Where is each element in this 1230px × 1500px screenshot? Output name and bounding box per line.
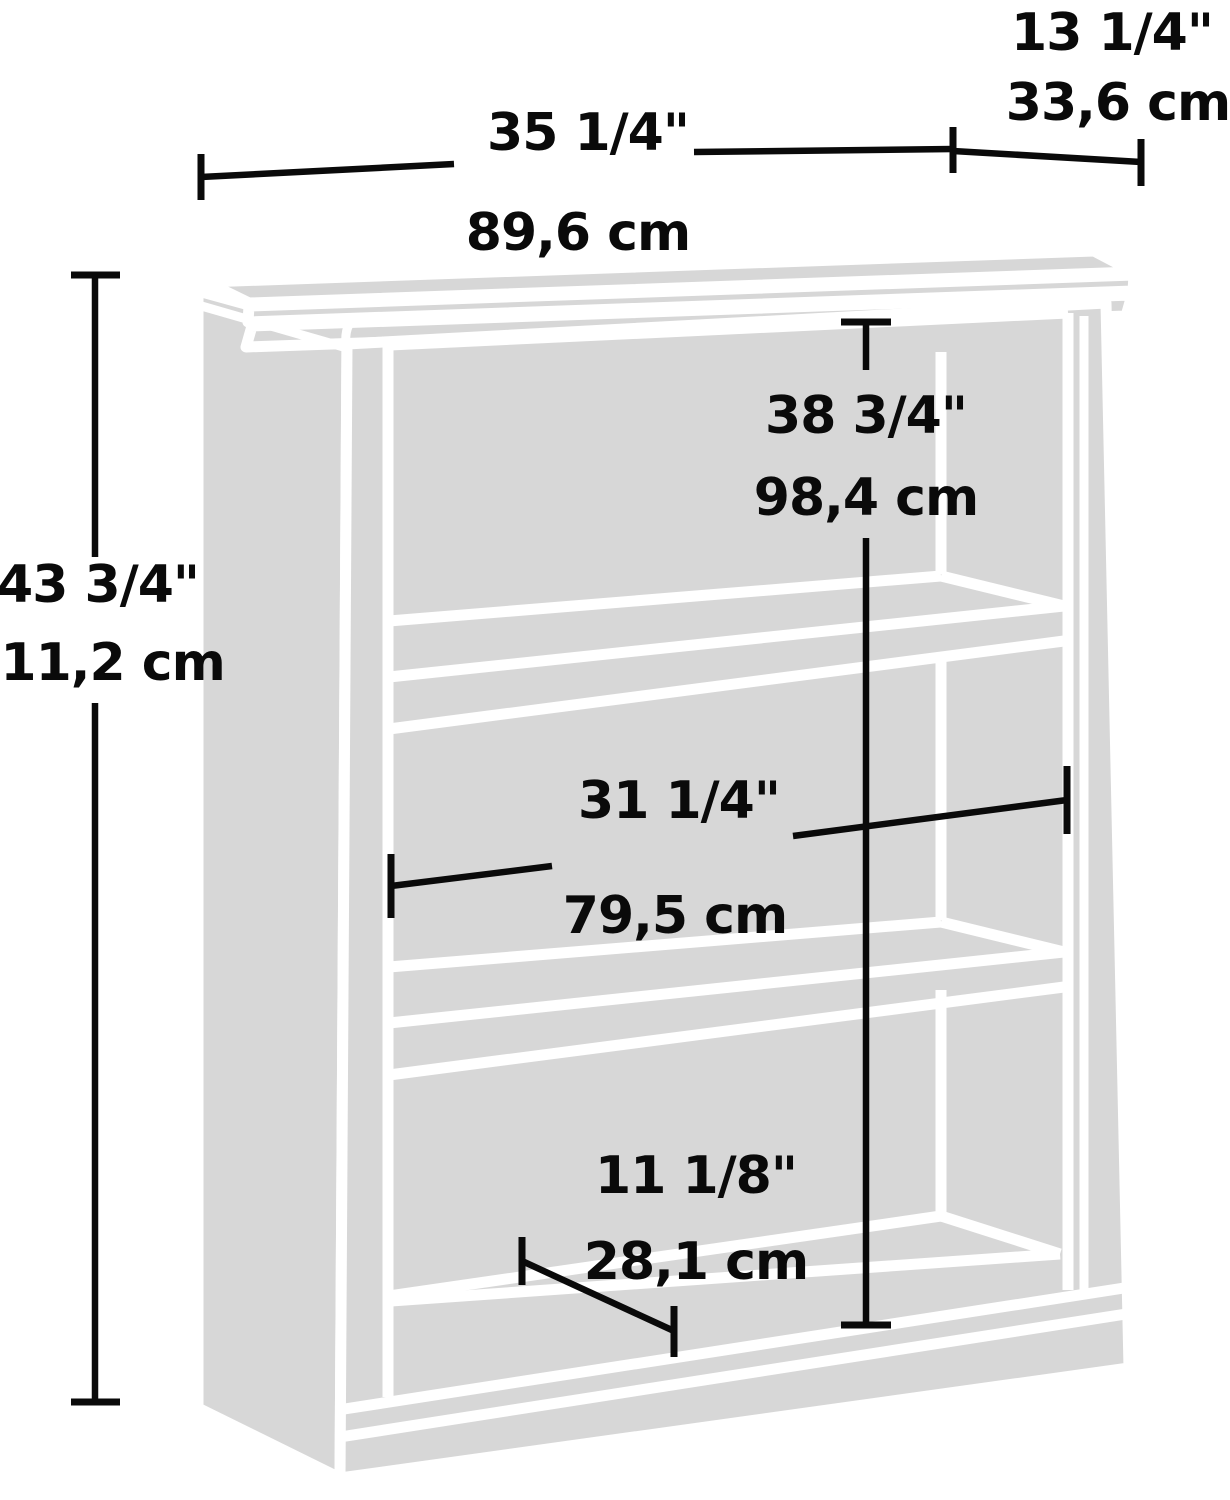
shelf-depth-metric-label: 28,1 cm bbox=[584, 1232, 808, 1292]
overall-width-metric-label: 89,6 cm bbox=[466, 203, 690, 263]
overall-height-inches-label: 43 3/4" bbox=[0, 555, 199, 615]
bookcase-drawing bbox=[198, 251, 1134, 1478]
diagram-canvas: 35 1/4" 89,6 cm 13 1/4" 33,6 cm 43 3/4" … bbox=[0, 0, 1230, 1500]
side-panel bbox=[198, 291, 347, 1478]
interior-height-metric-label: 98,4 cm bbox=[754, 468, 978, 528]
overall-depth-dimension bbox=[953, 139, 1141, 186]
overall-depth-metric-label: 33,6 cm bbox=[1006, 73, 1230, 133]
overall-height-dimension bbox=[71, 275, 120, 1402]
overall-width-inches-label: 35 1/4" bbox=[487, 103, 689, 163]
interior-height-inches-label: 38 3/4" bbox=[765, 386, 967, 446]
interior-width-metric-label: 79,5 cm bbox=[563, 886, 787, 946]
shelf-depth-inches-label: 11 1/8" bbox=[595, 1146, 797, 1206]
interior-width-inches-label: 31 1/4" bbox=[578, 771, 780, 831]
overall-depth-inches-label: 13 1/4" bbox=[1011, 3, 1213, 63]
overall-height-metric-label: 111,2 cm bbox=[0, 633, 225, 693]
bookcase-dimension-diagram: 35 1/4" 89,6 cm 13 1/4" 33,6 cm 43 3/4" … bbox=[0, 0, 1230, 1500]
